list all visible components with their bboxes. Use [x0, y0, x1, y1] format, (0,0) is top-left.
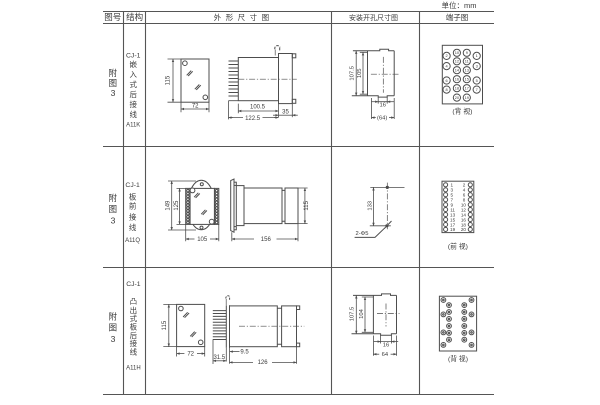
svg-text:单位：mm: 单位：mm [442, 0, 477, 10]
svg-text:19: 19 [465, 95, 469, 100]
svg-text:20: 20 [461, 227, 467, 232]
svg-text:2: 2 [446, 53, 448, 58]
svg-text:6: 6 [446, 78, 448, 83]
svg-text:17: 17 [465, 86, 469, 91]
svg-text:前: 前 [129, 200, 137, 210]
svg-text:(背 视): (背 视) [448, 354, 468, 363]
svg-text:122.5: 122.5 [245, 116, 261, 122]
svg-text:7: 7 [476, 87, 478, 92]
svg-text:19: 19 [450, 227, 456, 232]
svg-text:149: 149 [166, 200, 172, 211]
svg-text:15: 15 [465, 77, 469, 82]
svg-text:9.5: 9.5 [240, 350, 249, 356]
svg-text:13: 13 [465, 68, 469, 73]
svg-text:结构: 结构 [126, 12, 143, 22]
svg-text:115: 115 [304, 200, 310, 210]
svg-text:16: 16 [379, 102, 385, 108]
svg-text:2-Φ5: 2-Φ5 [355, 231, 368, 237]
svg-text:A11K: A11K [126, 123, 140, 129]
svg-text:105: 105 [357, 68, 363, 78]
svg-text:133: 133 [368, 201, 374, 211]
svg-text:式: 式 [130, 313, 138, 323]
svg-text:9: 9 [466, 50, 468, 55]
svg-text:嵌: 嵌 [129, 60, 137, 69]
svg-text:11: 11 [465, 59, 469, 64]
svg-text:3: 3 [111, 334, 116, 344]
svg-text:16: 16 [455, 77, 459, 82]
svg-text:3: 3 [476, 63, 478, 68]
svg-text:线: 线 [129, 222, 137, 232]
svg-text:式: 式 [129, 79, 137, 89]
svg-text:72: 72 [192, 104, 199, 110]
svg-text:1: 1 [476, 53, 478, 58]
svg-text:105: 105 [197, 237, 208, 243]
svg-text:入: 入 [129, 70, 137, 79]
svg-text:156: 156 [261, 237, 272, 243]
svg-text:后: 后 [129, 89, 137, 99]
svg-text:3: 3 [111, 88, 116, 98]
svg-text:接: 接 [129, 211, 137, 221]
svg-text:16: 16 [383, 342, 389, 348]
svg-text:107.5: 107.5 [350, 307, 356, 322]
svg-text:8: 8 [446, 87, 448, 92]
svg-text:(前 视): (前 视) [448, 241, 468, 250]
svg-text:A11H: A11H [126, 366, 141, 372]
svg-text:附: 附 [108, 192, 117, 203]
svg-text:(64): (64) [377, 116, 387, 122]
svg-text:126: 126 [258, 360, 269, 366]
svg-text:图: 图 [108, 78, 117, 88]
svg-text:附: 附 [108, 310, 117, 321]
svg-text:(背 视): (背 视) [452, 107, 472, 116]
svg-text:安装开孔尺寸图: 安装开孔尺寸图 [349, 13, 398, 22]
svg-text:104: 104 [359, 308, 365, 318]
svg-text:板: 板 [129, 191, 137, 201]
svg-text:115: 115 [166, 75, 172, 85]
svg-text:12: 12 [455, 59, 459, 64]
svg-text:3: 3 [111, 215, 116, 225]
svg-text:线: 线 [129, 109, 137, 119]
svg-text:接: 接 [130, 338, 138, 348]
svg-text:凸: 凸 [130, 297, 138, 306]
svg-text:附: 附 [108, 67, 117, 78]
svg-text:线: 线 [130, 347, 138, 357]
svg-text:接: 接 [129, 99, 137, 109]
svg-text:18: 18 [455, 86, 459, 91]
svg-text:CJ-1: CJ-1 [126, 52, 141, 59]
svg-text:CJ-1: CJ-1 [126, 281, 141, 288]
svg-text:图: 图 [108, 204, 117, 214]
svg-text:CJ-1: CJ-1 [125, 182, 140, 189]
svg-text:100.5: 100.5 [250, 105, 266, 111]
svg-text:125: 125 [174, 200, 180, 211]
svg-text:图: 图 [108, 323, 117, 333]
svg-text:外 形 尺 寸 图: 外 形 尺 寸 图 [214, 12, 271, 22]
svg-text:A11Q: A11Q [125, 238, 140, 244]
svg-text:115: 115 [162, 320, 168, 330]
svg-text:107.5: 107.5 [350, 66, 356, 81]
svg-text:5: 5 [476, 78, 478, 83]
svg-text:端子图: 端子图 [446, 12, 469, 22]
svg-text:35: 35 [282, 110, 289, 116]
svg-text:图号: 图号 [104, 12, 121, 22]
svg-text:31.5: 31.5 [213, 355, 225, 361]
svg-text:72: 72 [187, 352, 194, 358]
svg-text:64: 64 [382, 352, 389, 358]
